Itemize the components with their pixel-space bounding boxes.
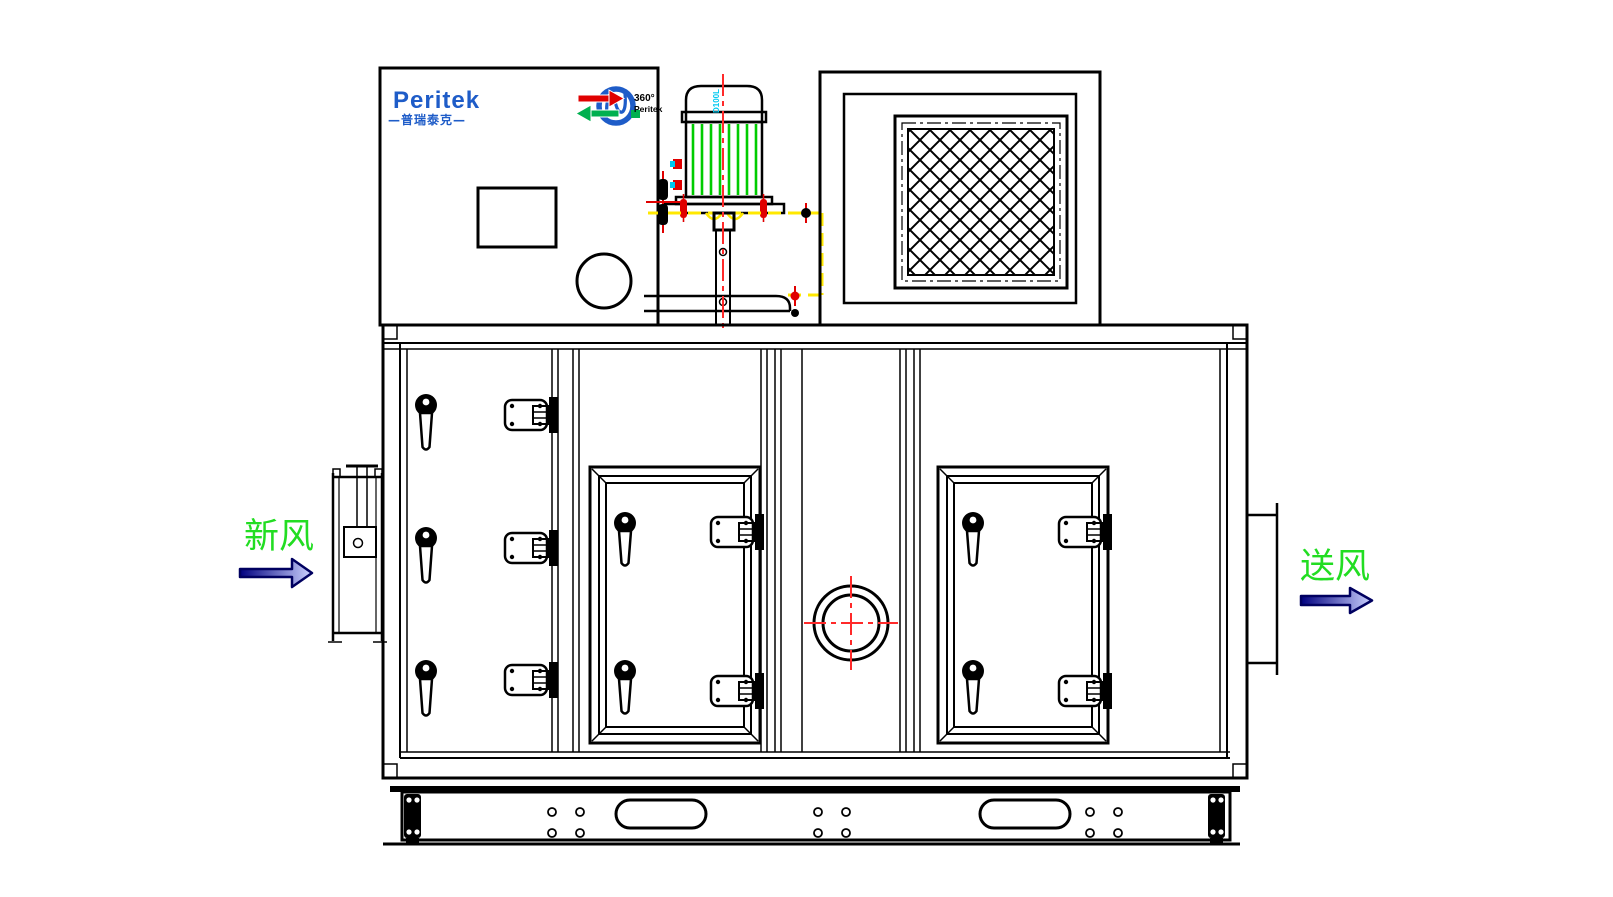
door-handle[interactable] bbox=[415, 660, 437, 716]
base-frame bbox=[383, 786, 1240, 844]
mullion bbox=[900, 349, 920, 752]
supply-air-flange bbox=[1247, 503, 1277, 675]
rotor-logo: 360° Peritek bbox=[576, 89, 663, 123]
supply-air-annotation: 送风 bbox=[1300, 547, 1372, 613]
door-handle[interactable] bbox=[415, 527, 437, 583]
door-latch[interactable] bbox=[1059, 514, 1112, 550]
corner-notch bbox=[383, 325, 397, 339]
cad-drawing-canvas: Peritek —普瑞泰克— 360° Peritek bbox=[0, 0, 1613, 897]
control-panel-cutout bbox=[478, 188, 556, 247]
rotor-degree-text: 360° bbox=[634, 93, 655, 104]
rotor-brand-text: Peritek bbox=[634, 104, 663, 114]
base-bracket bbox=[1208, 794, 1225, 844]
door-handle[interactable] bbox=[614, 660, 636, 714]
anchor-bolt-icon bbox=[801, 203, 811, 223]
cable-gland-hole bbox=[577, 254, 631, 308]
door-latch[interactable] bbox=[505, 397, 558, 433]
brand-chinese-text: —普瑞泰克— bbox=[388, 112, 466, 127]
base-bolt-holes bbox=[548, 808, 1122, 837]
door-latch[interactable] bbox=[711, 514, 764, 550]
door-latch[interactable] bbox=[1059, 673, 1112, 709]
door-handle[interactable] bbox=[962, 660, 984, 714]
inspection-grille-box bbox=[820, 72, 1100, 325]
fresh-air-arrow-icon bbox=[240, 559, 312, 587]
brand-name-text: Peritek bbox=[393, 87, 480, 114]
motor-model-label: D100L bbox=[712, 89, 721, 113]
forklift-slot bbox=[616, 800, 706, 828]
sight-glass-porthole bbox=[804, 576, 898, 670]
supply-air-label: 送风 bbox=[1300, 547, 1370, 587]
right-access-door[interactable] bbox=[938, 467, 1112, 743]
door-latch[interactable] bbox=[711, 673, 764, 709]
mesh-grille bbox=[908, 129, 1054, 275]
motor-assembly: D100L bbox=[644, 74, 822, 330]
door-handle[interactable] bbox=[415, 394, 437, 450]
door-latch[interactable] bbox=[505, 530, 558, 566]
fresh-air-label: 新风 bbox=[244, 517, 314, 557]
motor-stand bbox=[644, 213, 790, 325]
left-access-panel bbox=[415, 394, 558, 716]
door-handle[interactable] bbox=[614, 512, 636, 566]
forklift-slot bbox=[980, 800, 1070, 828]
wall-clip-icon bbox=[670, 159, 682, 190]
fresh-air-annotation: 新风 bbox=[240, 517, 314, 587]
supply-air-arrow-icon bbox=[1301, 588, 1372, 613]
door-handle[interactable] bbox=[962, 512, 984, 566]
corner-notch bbox=[1233, 325, 1247, 339]
fresh-air-inlet-damper bbox=[328, 466, 387, 642]
anchor-bolt-icon bbox=[791, 286, 800, 317]
middle-access-door[interactable] bbox=[590, 467, 764, 743]
corner-notch bbox=[1233, 764, 1247, 778]
control-box: Peritek —普瑞泰克— 360° Peritek bbox=[380, 68, 663, 325]
damper-actuator-handle[interactable] bbox=[344, 466, 378, 557]
base-bracket bbox=[404, 794, 421, 844]
door-latch[interactable] bbox=[505, 662, 558, 698]
corner-notch bbox=[383, 764, 397, 778]
brand-logo: Peritek —普瑞泰克— bbox=[388, 87, 480, 127]
